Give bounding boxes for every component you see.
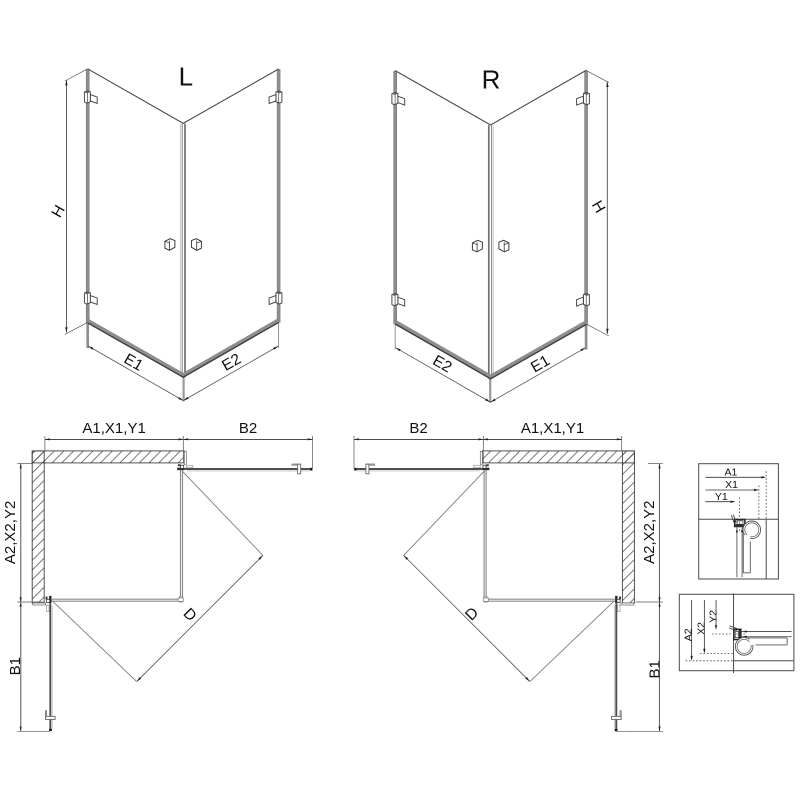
svg-text:B2: B2 [239, 420, 257, 437]
svg-text:L: L [179, 61, 193, 91]
svg-text:A1: A1 [724, 467, 737, 479]
svg-text:B1: B1 [647, 660, 664, 678]
svg-text:H: H [588, 198, 608, 216]
svg-text:B1: B1 [7, 657, 24, 675]
svg-text:X2: X2 [696, 622, 708, 635]
svg-text:A2,X2,Y2: A2,X2,Y2 [641, 501, 658, 564]
svg-text:A2,X2,Y2: A2,X2,Y2 [2, 501, 19, 564]
svg-text:X1: X1 [725, 479, 738, 491]
svg-text:D: D [462, 604, 482, 624]
svg-text:Y2: Y2 [708, 610, 720, 623]
svg-text:H: H [49, 202, 69, 220]
svg-text:A1,X1,Y1: A1,X1,Y1 [82, 420, 145, 437]
svg-text:R: R [482, 65, 501, 95]
svg-text:A2: A2 [683, 628, 695, 641]
svg-text:B2: B2 [409, 420, 427, 437]
svg-text:Y1: Y1 [715, 491, 728, 503]
svg-text:A1,X1,Y1: A1,X1,Y1 [521, 420, 584, 437]
